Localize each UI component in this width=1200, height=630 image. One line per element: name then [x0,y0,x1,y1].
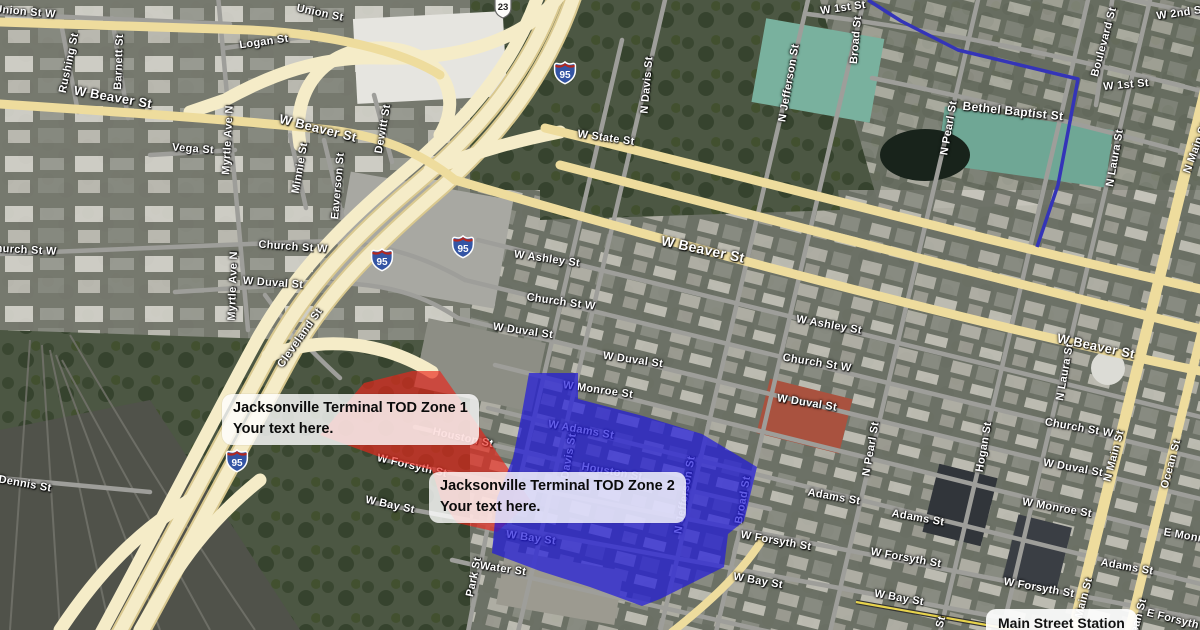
zone2-label-box[interactable]: Jacksonville Terminal TOD Zone 2 Your te… [429,472,686,523]
route-layer [0,0,1200,630]
main-street-station-label[interactable]: Main Street Station [986,609,1137,630]
zone2-title: Jacksonville Terminal TOD Zone 2 [440,476,675,497]
zone1-label-box[interactable]: Jacksonville Terminal TOD Zone 1 Your te… [222,394,479,445]
zone2-subtitle: Your text here. [440,497,675,518]
satellite-map-canvas[interactable]: Union St WUnion StLogan StRushing StBarn… [0,0,1200,630]
zone1-title: Jacksonville Terminal TOD Zone 1 [233,398,468,419]
zone1-subtitle: Your text here. [233,419,468,440]
route-polyline [868,0,1078,247]
station-label-text: Main Street Station [998,615,1125,630]
